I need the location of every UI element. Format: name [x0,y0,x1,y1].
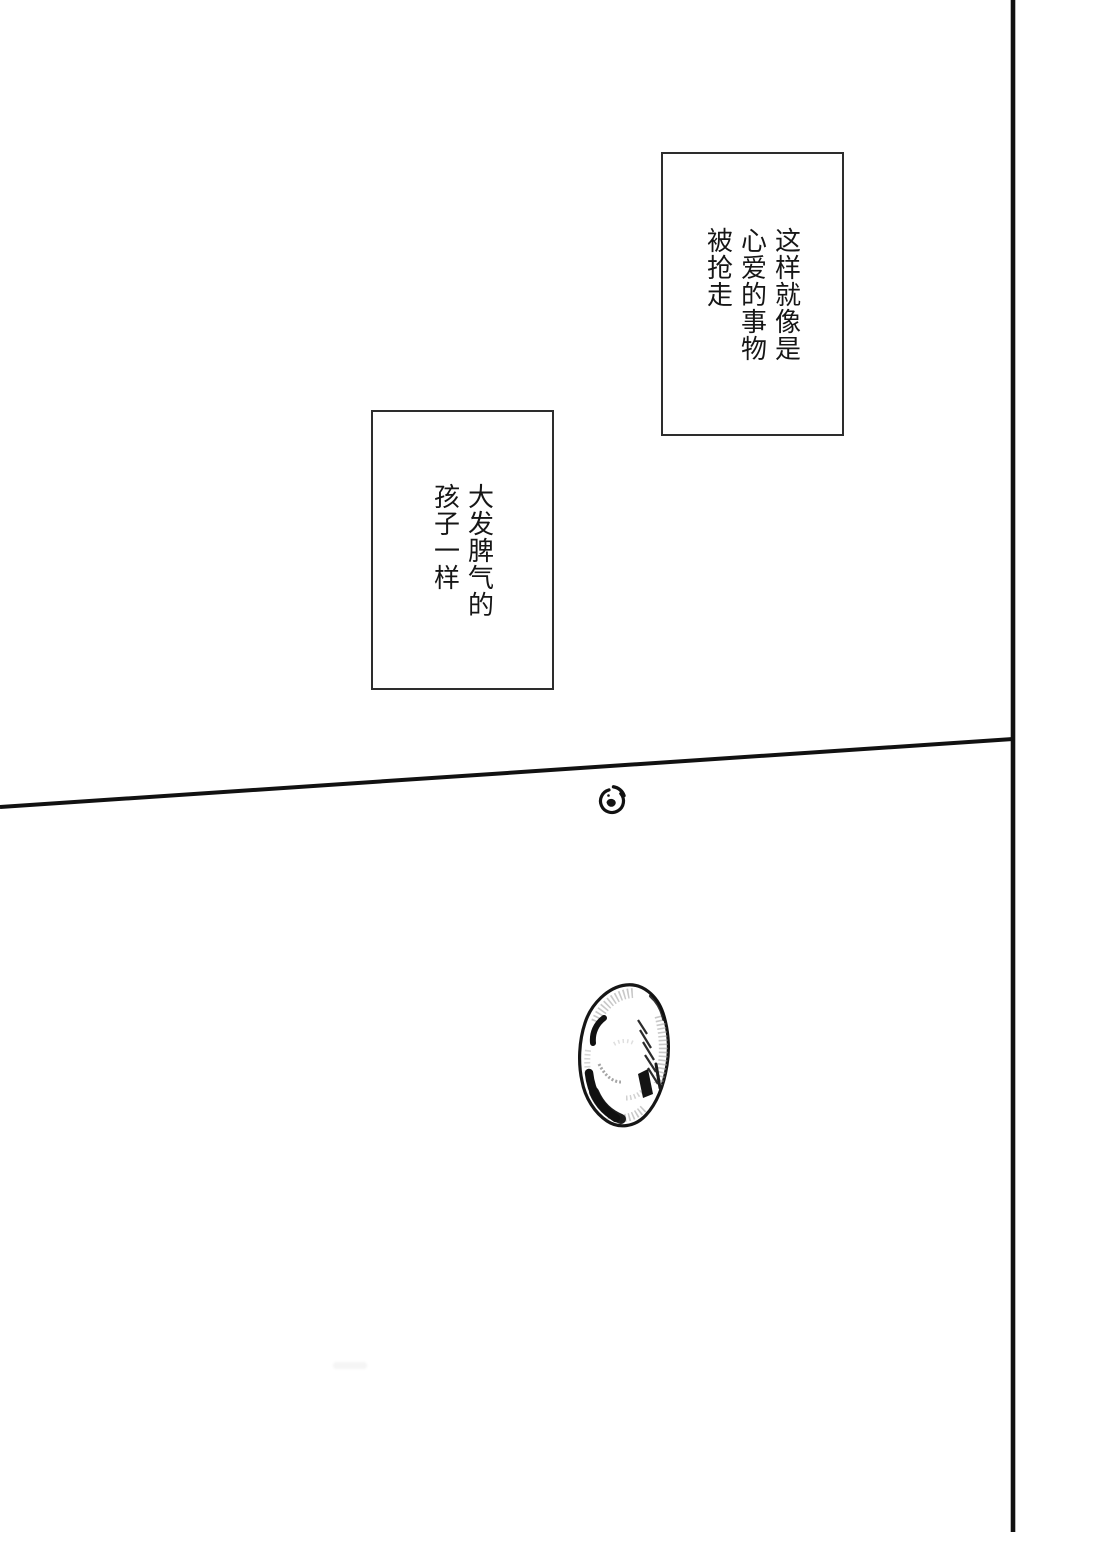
spiral-doodle-icon [595,783,629,817]
spiral-hook [614,787,625,796]
speech-bubble-mid-left: 大发脾气的 孩子一样 [371,410,554,690]
speech-bubble-top-right: 这样就像是 心爱的事物 被抢走 [661,152,844,436]
spiral-inner-dot [607,794,610,797]
speech-text-mid-left: 大发脾气的 孩子一样 [429,483,497,618]
egg-outline [580,985,669,1126]
spiral-inner-blob [607,799,616,807]
faint-smudge [333,1362,367,1369]
manga-page: 这样就像是 心爱的事物 被抢走 大发脾气的 孩子一样 [0,0,1100,1563]
speech-text-top-right: 这样就像是 心爱的事物 被抢走 [702,227,804,362]
stone-egg-drawing [574,980,674,1130]
panel-borders [0,0,1100,1563]
panel-divider-diagonal-line [0,739,1013,807]
